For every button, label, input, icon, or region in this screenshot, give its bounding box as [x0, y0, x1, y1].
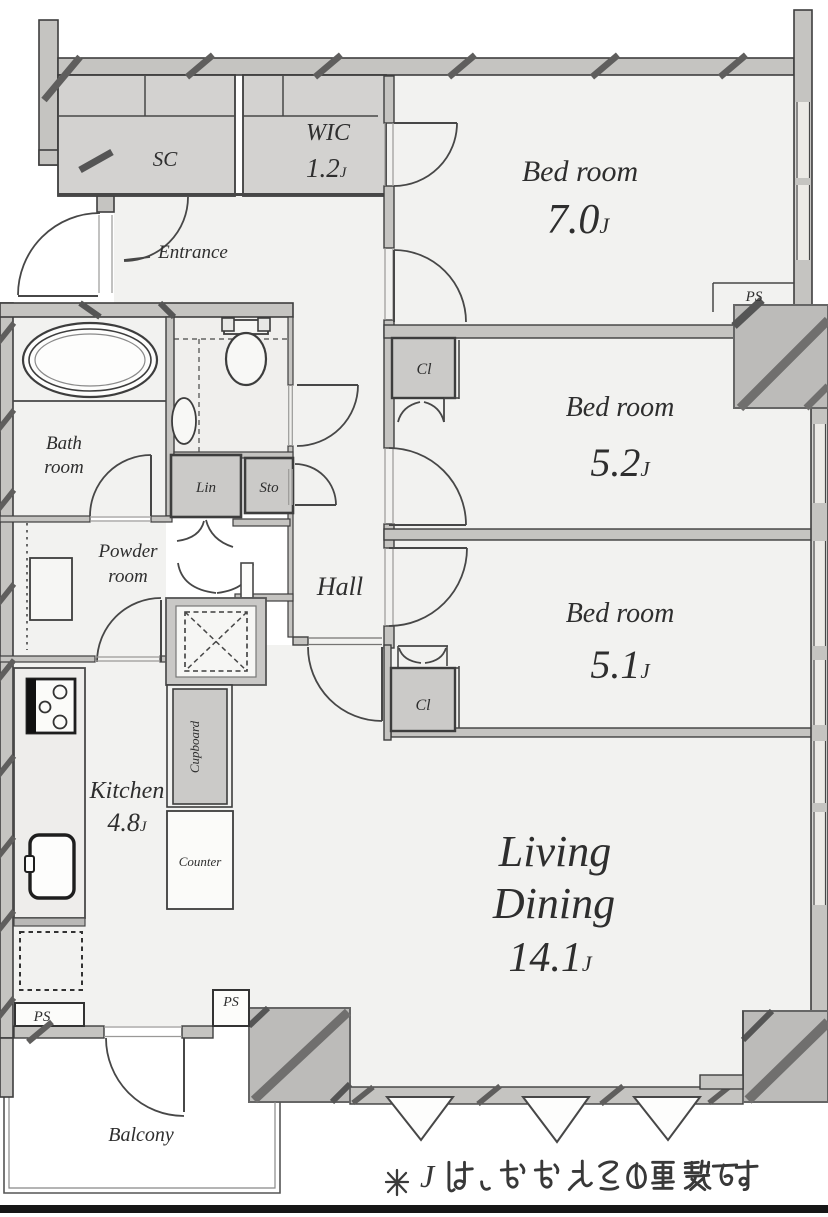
- svg-text:Bed room: Bed room: [566, 392, 675, 423]
- svg-text:Bed room: Bed room: [566, 598, 675, 629]
- svg-text:room: room: [108, 566, 147, 587]
- svg-text:Powder: Powder: [97, 541, 158, 562]
- svg-text:Cl: Cl: [416, 361, 432, 378]
- svg-text:Kitchen: Kitchen: [89, 778, 165, 804]
- svg-text:Counter: Counter: [179, 854, 223, 869]
- svg-text:Entrance: Entrance: [157, 242, 228, 263]
- svg-text:Bed room: Bed room: [522, 155, 638, 188]
- svg-text:WIC: WIC: [306, 120, 351, 146]
- svg-text:Lin: Lin: [195, 480, 216, 496]
- svg-text:Hall: Hall: [316, 572, 363, 601]
- svg-text:Living: Living: [498, 827, 611, 876]
- svg-text:PS: PS: [222, 995, 239, 1010]
- svg-text:Cl: Cl: [415, 697, 431, 714]
- svg-text:SC: SC: [153, 147, 179, 171]
- svg-text:PS: PS: [745, 289, 763, 305]
- svg-text:room: room: [44, 457, 83, 478]
- svg-text:Sto: Sto: [259, 480, 279, 496]
- svg-text:Balcony: Balcony: [108, 1124, 174, 1146]
- svg-text:Dining: Dining: [492, 879, 615, 928]
- svg-text:Cupboard: Cupboard: [187, 720, 202, 773]
- svg-text:J: J: [420, 1158, 436, 1194]
- svg-text:14.1J: 14.1J: [508, 935, 593, 981]
- svg-text:Bath: Bath: [46, 433, 82, 454]
